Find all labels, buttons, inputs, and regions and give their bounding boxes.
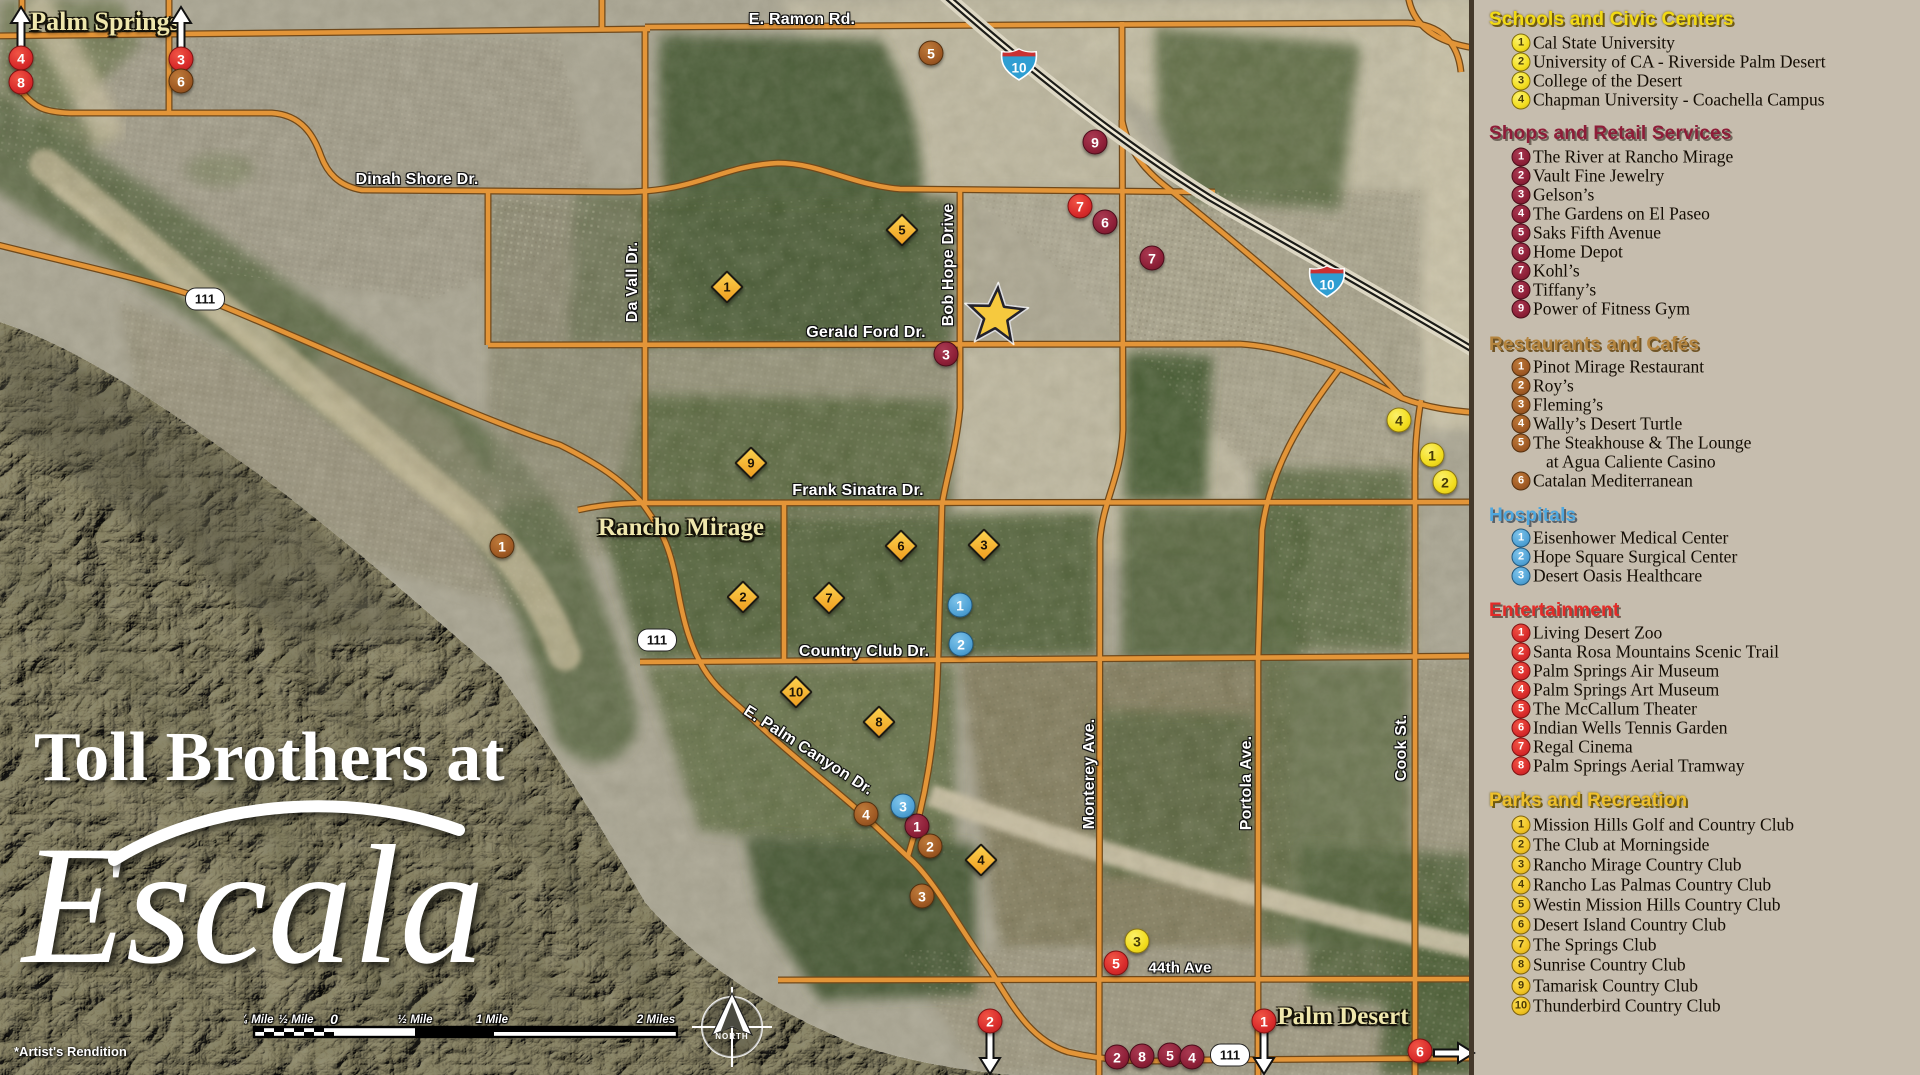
- svg-text:½ Mile: ½ Mile: [397, 1014, 433, 1026]
- svg-text:2 Miles: 2 Miles: [636, 1014, 675, 1026]
- svg-text:0: 0: [330, 1011, 338, 1027]
- svg-text:¼ Mile: ¼ Mile: [244, 1014, 274, 1026]
- svg-text:NORTH: NORTH: [715, 1032, 748, 1041]
- svg-text:Escala: Escala: [20, 811, 485, 999]
- svg-text:½ Mile: ½ Mile: [278, 1014, 314, 1026]
- svg-text:1 Mile: 1 Mile: [476, 1014, 509, 1026]
- svg-text:10: 10: [1319, 278, 1334, 293]
- svg-text:10: 10: [1011, 61, 1026, 76]
